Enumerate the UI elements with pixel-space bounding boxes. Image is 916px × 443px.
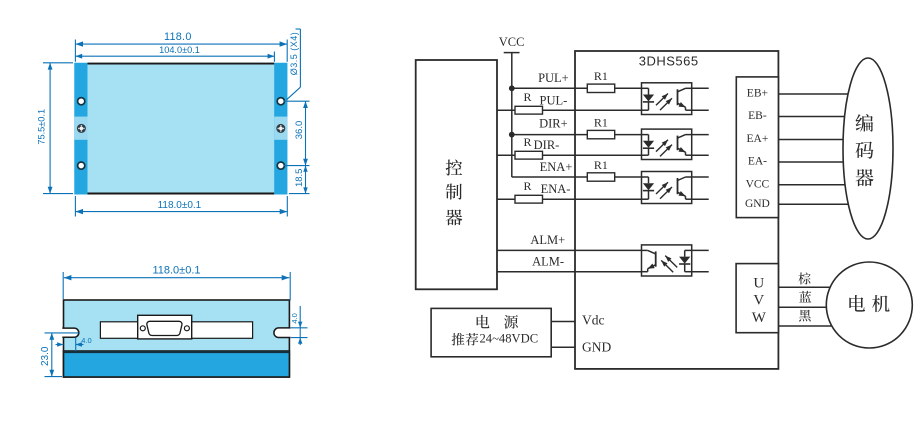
svg-text:75.5±0.1: 75.5±0.1	[36, 109, 46, 145]
svg-text:18.5: 18.5	[294, 169, 305, 188]
svg-text:EA-: EA-	[748, 156, 767, 168]
svg-text:Ø3.5 (X4): Ø3.5 (X4)	[289, 32, 299, 76]
svg-text:118.0±0.1: 118.0±0.1	[152, 265, 200, 277]
svg-text:R1: R1	[594, 158, 608, 172]
svg-text:VCC: VCC	[499, 35, 525, 49]
svg-text:PUL-: PUL-	[540, 93, 568, 107]
svg-text:24~48VDC: 24~48VDC	[480, 331, 539, 345]
svg-text:3DHS565: 3DHS565	[639, 54, 699, 69]
svg-text:Vdc: Vdc	[582, 313, 605, 328]
svg-text:DIR+: DIR+	[539, 117, 568, 131]
svg-text:V: V	[753, 293, 764, 309]
svg-text:23.0: 23.0	[40, 346, 51, 366]
svg-text:R1: R1	[594, 69, 608, 83]
svg-text:U: U	[753, 275, 764, 291]
svg-text:PUL+: PUL+	[538, 71, 569, 85]
svg-text:R: R	[523, 179, 531, 193]
svg-text:W: W	[752, 310, 767, 326]
svg-text:EA+: EA+	[746, 133, 768, 145]
svg-text:VCC: VCC	[746, 178, 770, 190]
svg-text:R: R	[523, 135, 531, 149]
svg-text:EB-: EB-	[748, 110, 767, 122]
svg-text:ALM-: ALM-	[532, 254, 564, 268]
svg-text:R1: R1	[594, 115, 608, 129]
svg-text:GND: GND	[745, 198, 770, 210]
svg-text:4.0: 4.0	[290, 313, 299, 323]
svg-text:DIR-: DIR-	[534, 138, 560, 152]
svg-text:36.0: 36.0	[294, 121, 305, 140]
svg-text:R: R	[523, 90, 531, 104]
svg-text:ENA-: ENA-	[541, 182, 571, 196]
svg-text:4.0: 4.0	[81, 336, 91, 345]
svg-text:GND: GND	[582, 339, 611, 354]
svg-text:ALM+: ALM+	[530, 233, 565, 247]
svg-text:118.0: 118.0	[164, 31, 192, 43]
svg-text:EB+: EB+	[747, 88, 768, 100]
svg-text:118.0±0.1: 118.0±0.1	[158, 200, 202, 211]
svg-text:ENA+: ENA+	[540, 160, 573, 174]
svg-text:104.0±0.1: 104.0±0.1	[159, 45, 200, 55]
